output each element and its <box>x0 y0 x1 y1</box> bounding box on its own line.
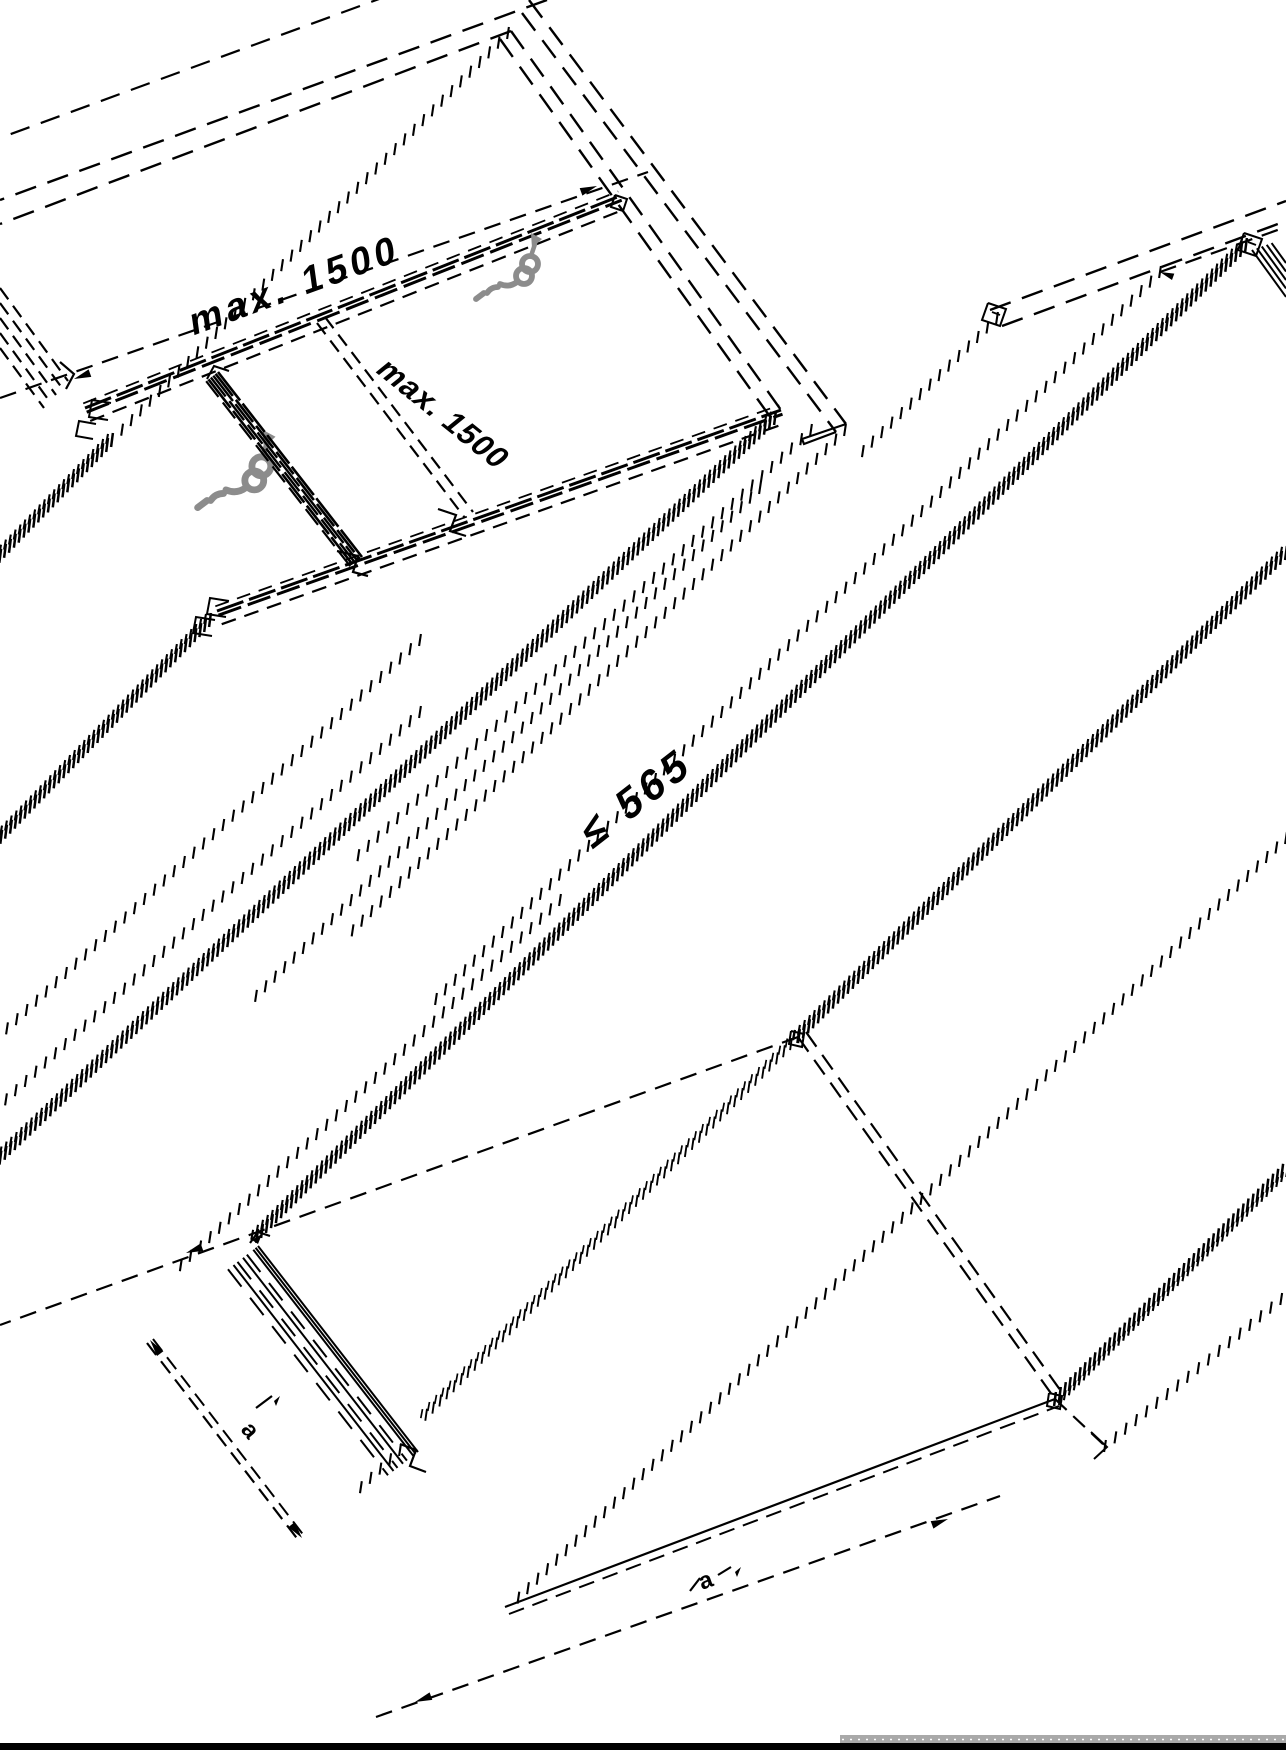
svg-text:≤ 565: ≤ 565 <box>574 736 698 858</box>
svg-text:max. 1500: max. 1500 <box>187 226 402 345</box>
svg-text:a: a <box>235 1417 265 1445</box>
svg-text:max. 1500: max. 1500 <box>369 353 519 474</box>
svg-text:a: a <box>695 1565 717 1595</box>
